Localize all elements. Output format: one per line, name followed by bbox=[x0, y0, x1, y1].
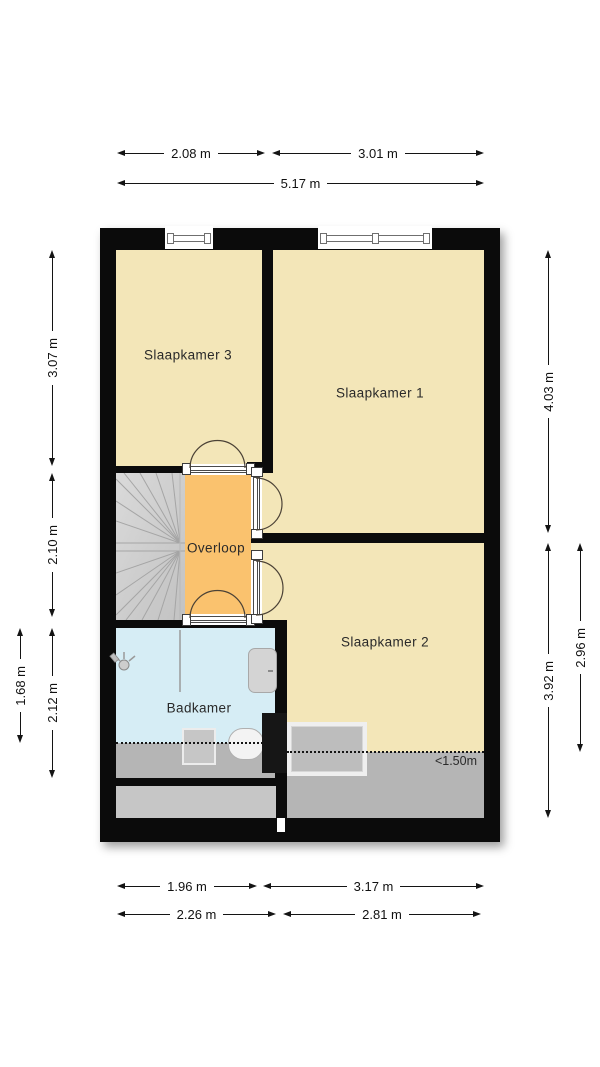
door-arc bbox=[256, 478, 282, 530]
door-arc bbox=[256, 561, 283, 615]
duct-block bbox=[262, 713, 287, 773]
label-badkamer: Badkamer bbox=[167, 701, 232, 716]
floorplan: Slaapkamer 3 Slaapkamer 1 Slaapkamer 2 O… bbox=[100, 228, 500, 842]
dim-label: 2.08 m bbox=[164, 147, 218, 160]
floorplan-canvas: 2.08 m 3.01 m 5.17 m 1.96 m 3.17 m 2.26 … bbox=[0, 0, 600, 1067]
dim-bottom-left-2: 2.26 m bbox=[117, 907, 276, 921]
dim-bottom-right-1: 3.17 m bbox=[263, 879, 484, 893]
shower-icon bbox=[110, 652, 135, 670]
dim-label: 5.17 m bbox=[274, 177, 328, 190]
dim-label: 2.26 m bbox=[170, 908, 224, 921]
dim-label: 3.17 m bbox=[347, 880, 401, 893]
dim-label: 3.07 m bbox=[46, 331, 59, 385]
label-overloop: Overloop bbox=[187, 541, 245, 556]
dim-label: 2.81 m bbox=[355, 908, 409, 921]
dim-label: 1.96 m bbox=[160, 880, 214, 893]
dim-label: 2.96 m bbox=[574, 621, 587, 675]
dim-left-badkamer: 2.12 m bbox=[45, 628, 59, 778]
door-arc bbox=[190, 441, 245, 468]
arrowhead bbox=[117, 150, 125, 156]
dim-left-badkamer-headroom: 1.68 m bbox=[13, 628, 27, 743]
washbasin-icon bbox=[248, 648, 277, 693]
radiator-icon bbox=[182, 728, 216, 765]
skylight-icon bbox=[287, 722, 367, 776]
label-slaapkamer1: Slaapkamer 1 bbox=[336, 386, 424, 401]
dim-label: 2.12 m bbox=[46, 676, 59, 730]
headroom-line-badkamer bbox=[116, 742, 275, 744]
dim-top-right: 3.01 m bbox=[272, 146, 484, 160]
dim-bottom-right-2: 2.81 m bbox=[283, 907, 481, 921]
dim-label: 4.03 m bbox=[542, 365, 555, 419]
dim-top-total: 5.17 m bbox=[117, 176, 484, 190]
dim-left-overloop: 2.10 m bbox=[45, 473, 59, 617]
label-slaapkamer3: Slaapkamer 3 bbox=[144, 348, 232, 363]
dim-right-slaapkamer2: 3.92 m bbox=[541, 543, 555, 818]
label-slaapkamer2: Slaapkamer 2 bbox=[341, 635, 429, 650]
dim-top-left: 2.08 m bbox=[117, 146, 265, 160]
dim-left-slaapkamer3: 3.07 m bbox=[45, 250, 59, 466]
dim-label: 3.92 m bbox=[542, 654, 555, 708]
door-arc bbox=[190, 591, 245, 618]
toilet-icon bbox=[228, 728, 264, 760]
dim-label: 2.10 m bbox=[46, 518, 59, 572]
arrowhead bbox=[257, 150, 265, 156]
dim-right-slaapkamer2-headroom: 2.96 m bbox=[573, 543, 587, 752]
dim-label: 3.01 m bbox=[351, 147, 405, 160]
headroom-line-slaapkamer2 bbox=[287, 751, 484, 753]
dim-right-slaapkamer1: 4.03 m bbox=[541, 250, 555, 533]
dim-bottom-left-1: 1.96 m bbox=[117, 879, 257, 893]
dim-label: 1.68 m bbox=[14, 659, 27, 713]
low-headroom-note: <1.50m bbox=[435, 754, 477, 768]
